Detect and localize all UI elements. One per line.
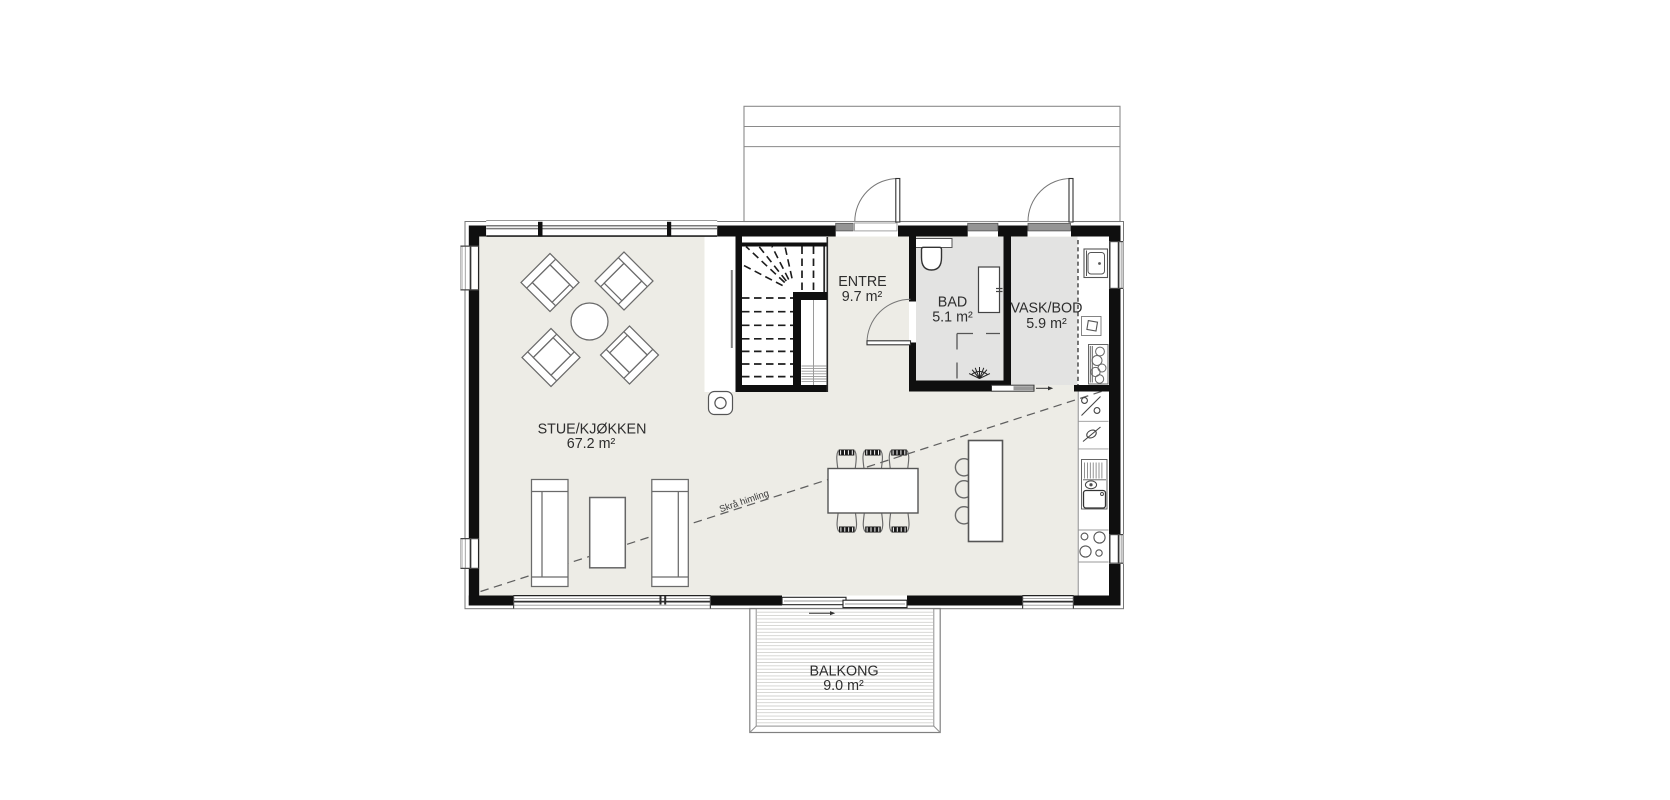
svg-text:5.1 m²: 5.1 m² [932, 310, 973, 326]
svg-text:67.2 m²: 67.2 m² [567, 436, 616, 452]
svg-text:5.9 m²: 5.9 m² [1026, 316, 1067, 332]
svg-text:9.0 m²: 9.0 m² [823, 678, 864, 694]
svg-text:ENTRE: ENTRE [838, 274, 886, 290]
svg-text:VASK/BOD: VASK/BOD [1010, 301, 1082, 317]
svg-text:9.7 m²: 9.7 m² [842, 289, 883, 305]
svg-text:BAD: BAD [938, 295, 967, 311]
